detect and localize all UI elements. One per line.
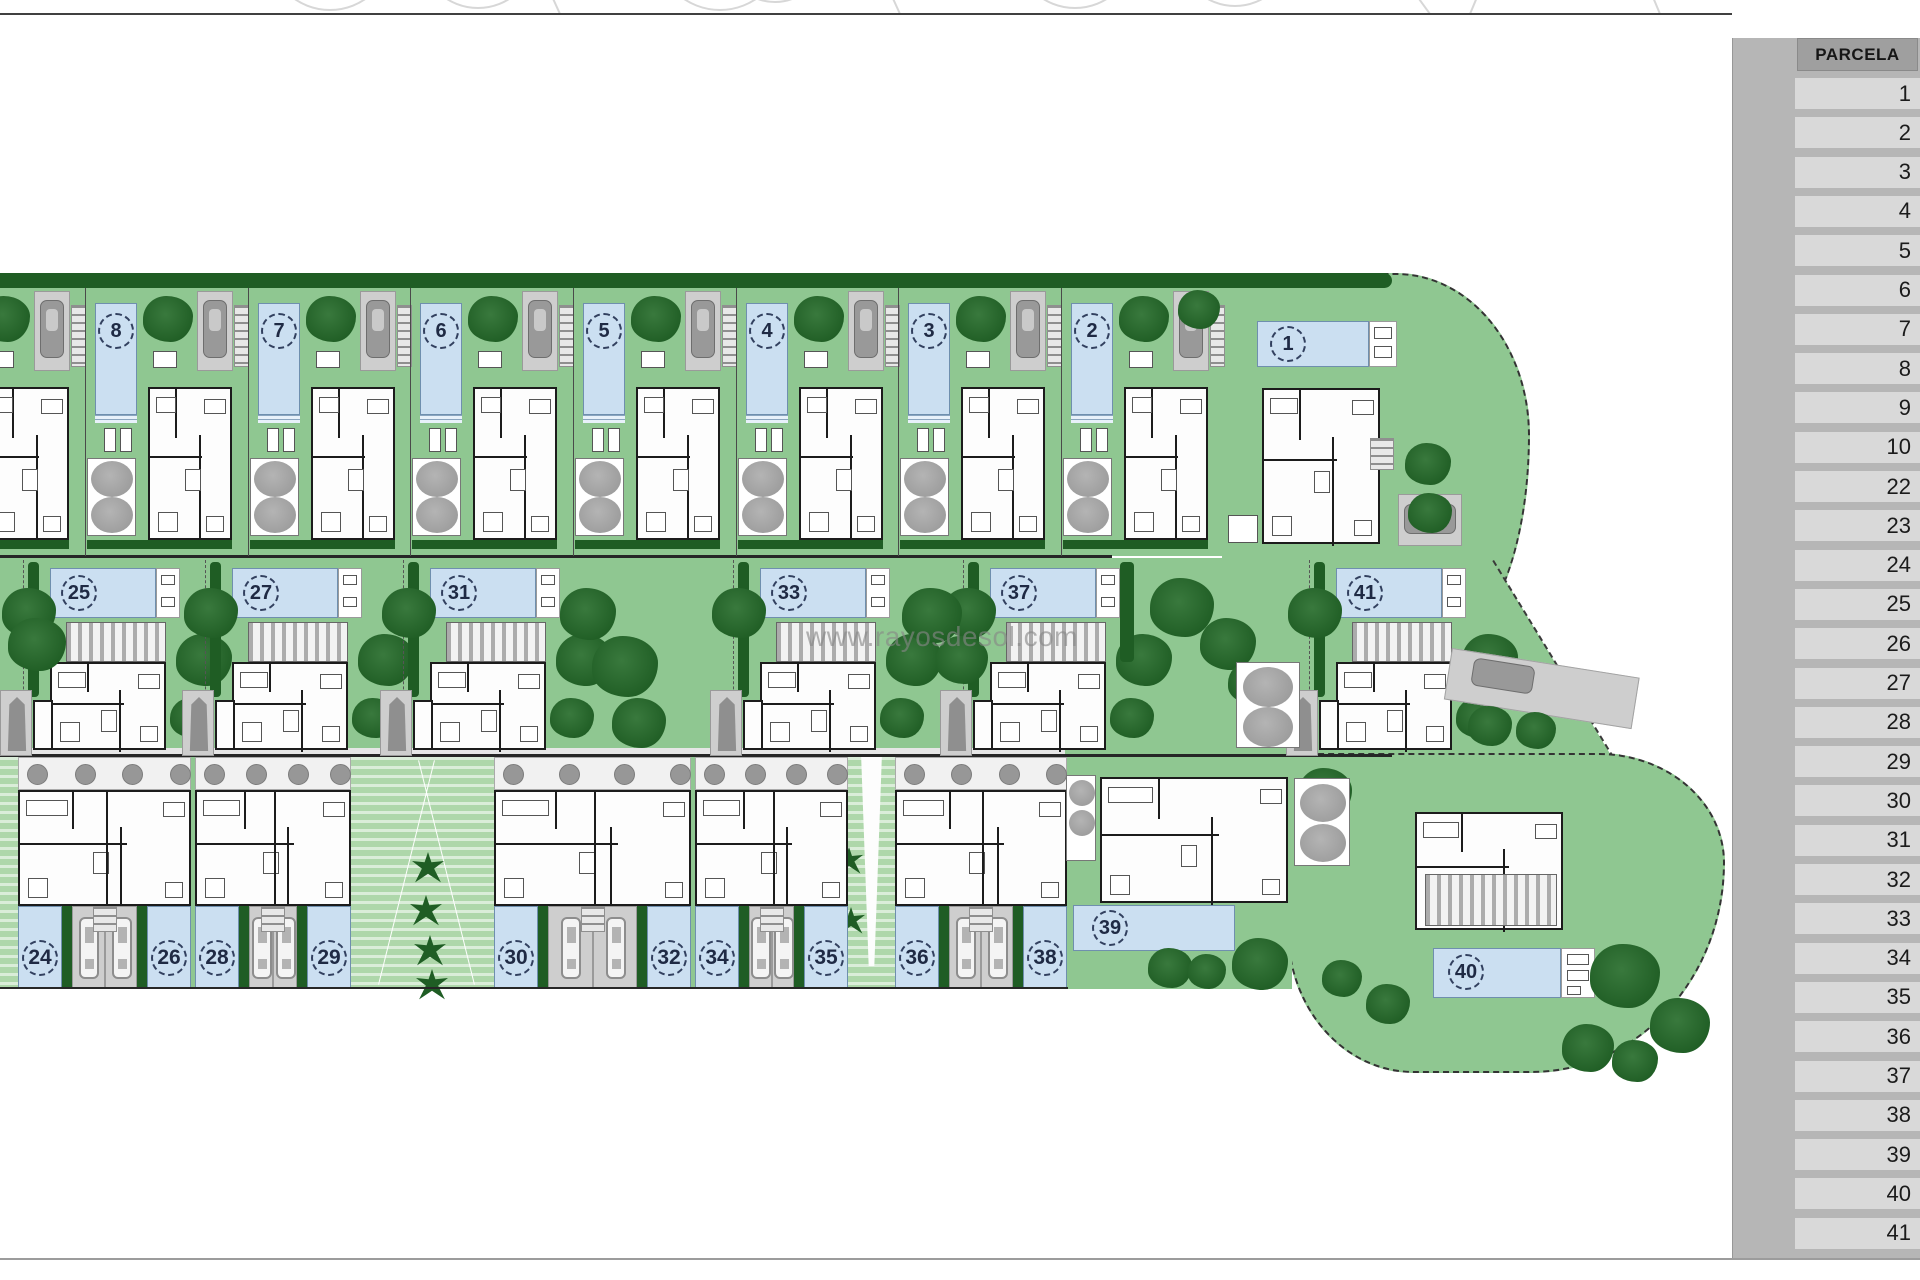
row1-house bbox=[473, 387, 557, 540]
front-terrace bbox=[494, 757, 691, 790]
rear-patio bbox=[412, 458, 461, 536]
sun-lounger bbox=[871, 575, 885, 585]
car-roof bbox=[209, 309, 221, 331]
plot-number-label: 33 bbox=[771, 575, 807, 611]
car-roof bbox=[534, 309, 546, 331]
car-icon bbox=[1016, 300, 1040, 358]
sun-lounger bbox=[1080, 428, 1092, 452]
party-wall bbox=[106, 792, 108, 908]
parcela-row: 36 bbox=[1795, 1021, 1920, 1052]
row2-house bbox=[430, 662, 546, 750]
car-roof bbox=[860, 309, 872, 331]
pool-steps bbox=[95, 415, 137, 423]
pool-deck bbox=[536, 568, 560, 618]
parcela-row: 25 bbox=[1795, 589, 1920, 620]
parcela-row: 10 bbox=[1795, 432, 1920, 463]
plot-number-label: 6 bbox=[423, 313, 459, 349]
garden-table bbox=[1228, 515, 1258, 543]
sun-lounger bbox=[608, 428, 620, 452]
parcela-row: 38 bbox=[1795, 1100, 1920, 1131]
plot-number-label: 3 bbox=[911, 313, 947, 349]
furniture bbox=[348, 469, 364, 491]
sun-lounger bbox=[343, 597, 357, 607]
gray-tree-icon bbox=[1300, 784, 1346, 822]
tree-icon bbox=[1468, 706, 1512, 746]
garden-table bbox=[641, 351, 665, 368]
sun-lounger bbox=[161, 597, 175, 607]
furniture bbox=[663, 802, 685, 817]
tree-icon bbox=[1178, 290, 1220, 329]
gray-tree-icon bbox=[91, 461, 133, 497]
furniture bbox=[1078, 674, 1100, 689]
rear-hedge bbox=[250, 540, 395, 549]
parasol-icon bbox=[559, 764, 580, 785]
parcela-row: 7 bbox=[1795, 314, 1920, 345]
house-wall bbox=[197, 843, 294, 845]
house-wall bbox=[87, 664, 89, 692]
walk-strip bbox=[848, 757, 895, 988]
plot-number-label: 32 bbox=[651, 940, 687, 976]
plot-boundary bbox=[85, 288, 86, 556]
parasol-icon bbox=[999, 764, 1020, 785]
parcela-row: 27 bbox=[1795, 668, 1920, 699]
furniture bbox=[1424, 674, 1446, 689]
furniture bbox=[761, 852, 777, 874]
furniture bbox=[502, 800, 549, 816]
garden-tree-icon bbox=[1119, 296, 1169, 342]
gray-tree-icon bbox=[1067, 461, 1109, 497]
furniture bbox=[1080, 726, 1098, 742]
pool-deck bbox=[866, 568, 890, 618]
sun-lounger bbox=[541, 597, 555, 607]
tree-icon bbox=[1288, 588, 1342, 638]
rear-patio bbox=[1063, 458, 1112, 536]
hedge-strip bbox=[1120, 562, 1134, 662]
entrance-steps bbox=[722, 305, 737, 367]
gray-tree-icon bbox=[1069, 810, 1095, 836]
row2-house-wing bbox=[973, 700, 993, 750]
car-icon bbox=[691, 300, 715, 358]
parasol-icon bbox=[827, 764, 848, 785]
furniture bbox=[1019, 516, 1037, 532]
house-wall bbox=[1264, 459, 1337, 461]
furniture bbox=[998, 672, 1026, 688]
plot-boundary bbox=[898, 288, 899, 556]
furniture bbox=[1039, 802, 1061, 817]
rear-patio bbox=[250, 458, 299, 536]
palm-tree-icon bbox=[411, 852, 445, 884]
house-wall bbox=[1211, 817, 1213, 905]
plot-number-label: 39 bbox=[1092, 910, 1128, 946]
car-seat bbox=[994, 927, 1003, 943]
gray-tree-icon bbox=[579, 461, 621, 497]
house-wall bbox=[1027, 664, 1029, 692]
sun-lounger bbox=[343, 575, 357, 585]
hedge-strip bbox=[739, 906, 749, 988]
row2-house-wing bbox=[743, 700, 763, 750]
furniture bbox=[58, 672, 86, 688]
garden-tree-icon bbox=[143, 296, 193, 342]
gray-tree-icon bbox=[1243, 707, 1293, 747]
rear-hedge bbox=[0, 540, 69, 549]
tree-icon bbox=[382, 588, 436, 638]
parasol-icon bbox=[614, 764, 635, 785]
furniture bbox=[822, 882, 840, 898]
car-icon bbox=[5, 697, 29, 751]
house-wall bbox=[120, 827, 122, 908]
furniture bbox=[1041, 710, 1057, 732]
parcela-row: 1 bbox=[1795, 78, 1920, 109]
sun-lounger bbox=[917, 428, 929, 452]
furniture bbox=[1161, 469, 1177, 491]
palm-tree-icon bbox=[415, 969, 449, 1001]
plot-number-label: 36 bbox=[899, 940, 935, 976]
furniture bbox=[158, 512, 178, 532]
furniture bbox=[971, 512, 991, 532]
furniture bbox=[438, 672, 466, 688]
pergola bbox=[1352, 622, 1452, 662]
house-wall bbox=[1373, 664, 1375, 692]
parasol-icon bbox=[786, 764, 807, 785]
furniture bbox=[529, 399, 551, 414]
sun-lounger bbox=[429, 428, 441, 452]
furniture bbox=[185, 469, 201, 491]
plot-number-label: 8 bbox=[98, 313, 134, 349]
row1-house bbox=[0, 387, 69, 540]
rear-hedge bbox=[1063, 540, 1208, 549]
row1-house bbox=[961, 387, 1045, 540]
plot-boundary bbox=[736, 288, 737, 556]
row2-house bbox=[232, 662, 348, 750]
plot-boundary bbox=[248, 288, 249, 556]
car-icon bbox=[203, 300, 227, 358]
furniture bbox=[665, 882, 683, 898]
parcela-row: 2 bbox=[1795, 117, 1920, 148]
tree-icon bbox=[1650, 998, 1710, 1053]
sun-lounger bbox=[161, 575, 175, 585]
furniture bbox=[848, 674, 870, 689]
shared-steps bbox=[760, 906, 784, 932]
house-wall bbox=[992, 703, 1064, 705]
furniture bbox=[905, 878, 925, 898]
row1-house bbox=[1124, 387, 1208, 540]
parasol-icon bbox=[745, 764, 766, 785]
house-wall bbox=[475, 456, 527, 458]
furniture bbox=[240, 672, 268, 688]
furniture bbox=[1260, 789, 1282, 804]
hedge-strip bbox=[1013, 906, 1023, 988]
furniture bbox=[768, 672, 796, 688]
furniture bbox=[531, 516, 549, 532]
house-wall bbox=[762, 703, 834, 705]
gray-tree-icon bbox=[1300, 824, 1346, 862]
parcela-row: 22 bbox=[1795, 471, 1920, 502]
furniture bbox=[483, 512, 503, 532]
plot-number-label: 40 bbox=[1448, 954, 1484, 990]
garden-table bbox=[153, 351, 177, 368]
rear-hedge bbox=[575, 540, 720, 549]
pergola bbox=[1425, 874, 1557, 926]
house-wall bbox=[20, 843, 127, 845]
car-seat bbox=[258, 959, 267, 969]
furniture bbox=[903, 800, 944, 816]
tree-icon bbox=[712, 588, 766, 638]
rear-hedge bbox=[738, 540, 883, 549]
parcela-row: 33 bbox=[1795, 903, 1920, 934]
car-icon bbox=[385, 697, 409, 751]
hedge-strip bbox=[137, 906, 147, 988]
furniture bbox=[322, 726, 340, 742]
sun-lounger bbox=[933, 428, 945, 452]
parasol-icon bbox=[904, 764, 925, 785]
parcela-row: 26 bbox=[1795, 628, 1920, 659]
furniture bbox=[1352, 400, 1374, 415]
parcela-row: 37 bbox=[1795, 1061, 1920, 1092]
hedge-strip bbox=[794, 906, 804, 988]
hedge-strip bbox=[62, 906, 72, 988]
tree-icon bbox=[1110, 698, 1154, 738]
car-seat bbox=[567, 927, 576, 943]
tree-icon bbox=[1405, 443, 1451, 485]
pergola bbox=[248, 622, 348, 662]
parasol-icon bbox=[75, 764, 96, 785]
pool-steps bbox=[908, 415, 950, 423]
furniture bbox=[850, 726, 868, 742]
house-wall bbox=[1338, 703, 1410, 705]
row1-row2-divider bbox=[0, 555, 1112, 558]
palm-tree-icon bbox=[409, 895, 443, 927]
house-wall bbox=[697, 843, 792, 845]
furniture bbox=[520, 726, 538, 742]
plot-number-label: 27 bbox=[243, 575, 279, 611]
parasol-icon bbox=[670, 764, 691, 785]
furniture bbox=[481, 710, 497, 732]
furniture bbox=[369, 516, 387, 532]
pergola bbox=[446, 622, 546, 662]
parcela-row: 41 bbox=[1795, 1218, 1920, 1249]
parcela-header: PARCELA bbox=[1797, 38, 1918, 71]
plot-number-label: 26 bbox=[151, 940, 187, 976]
shared-steps bbox=[261, 906, 285, 932]
house-wall bbox=[1126, 456, 1178, 458]
plot-number-label: 35 bbox=[808, 940, 844, 976]
rear-hedge bbox=[412, 540, 557, 549]
car-icon bbox=[606, 917, 626, 979]
house-wall bbox=[1417, 866, 1509, 868]
gray-tree-icon bbox=[416, 497, 458, 533]
parcela-row: 8 bbox=[1795, 353, 1920, 384]
parcela-row: 39 bbox=[1795, 1139, 1920, 1170]
tree-icon bbox=[550, 698, 594, 738]
rear-patio bbox=[900, 458, 949, 536]
sun-lounger bbox=[541, 575, 555, 585]
parcela-row: 3 bbox=[1795, 157, 1920, 188]
sun-lounger bbox=[104, 428, 116, 452]
house-wall bbox=[1461, 814, 1463, 852]
furniture bbox=[60, 722, 80, 742]
parcela-row: 28 bbox=[1795, 707, 1920, 738]
furniture bbox=[1272, 516, 1292, 536]
tree-icon bbox=[184, 588, 238, 638]
driveway bbox=[182, 690, 214, 756]
party-wall bbox=[594, 792, 596, 908]
tree-icon bbox=[1590, 944, 1660, 1008]
furniture bbox=[1182, 516, 1200, 532]
parcela-row: 4 bbox=[1795, 196, 1920, 227]
plot-number-label: 37 bbox=[1001, 575, 1037, 611]
gray-tree-icon bbox=[742, 461, 784, 497]
tree-icon bbox=[592, 636, 658, 697]
tree-icon bbox=[1612, 1040, 1658, 1082]
furniture bbox=[41, 399, 63, 414]
gray-tree-icon bbox=[91, 497, 133, 533]
house-wall bbox=[499, 690, 501, 752]
garden-table bbox=[804, 351, 828, 368]
car-seat bbox=[612, 927, 621, 943]
party-wall bbox=[773, 792, 775, 908]
tree-icon bbox=[1322, 960, 1362, 997]
plot1-pool-deck bbox=[1369, 321, 1397, 367]
entrance-steps bbox=[1047, 305, 1062, 367]
rear-patio bbox=[87, 458, 136, 536]
sun-lounger bbox=[267, 428, 279, 452]
furniture bbox=[504, 878, 524, 898]
row2-house bbox=[990, 662, 1106, 750]
furniture bbox=[644, 397, 664, 413]
furniture bbox=[0, 397, 13, 413]
duplex-house bbox=[895, 790, 1067, 906]
parasol-icon bbox=[951, 764, 972, 785]
tree-icon bbox=[1148, 948, 1192, 988]
furniture bbox=[323, 802, 345, 817]
furniture bbox=[138, 674, 160, 689]
rear-patio bbox=[575, 458, 624, 536]
furniture bbox=[811, 710, 827, 732]
gray-tree-icon bbox=[579, 497, 621, 533]
pool-deck bbox=[156, 568, 180, 618]
parasol-icon bbox=[288, 764, 309, 785]
tree-icon bbox=[176, 634, 232, 686]
car-roof bbox=[697, 309, 709, 331]
furniture bbox=[0, 512, 15, 532]
pergola bbox=[66, 622, 166, 662]
sun-lounger bbox=[283, 428, 295, 452]
parcela-rows: 1234567891022232425262728293031323334353… bbox=[1795, 78, 1920, 1258]
house-wall bbox=[610, 827, 612, 908]
garden-table bbox=[316, 351, 340, 368]
house-wall bbox=[801, 456, 853, 458]
parcela-row: 9 bbox=[1795, 392, 1920, 423]
parcela-row: 31 bbox=[1795, 825, 1920, 856]
furniture bbox=[26, 800, 68, 816]
furniture bbox=[1270, 398, 1298, 414]
furniture bbox=[857, 516, 875, 532]
plot39-house bbox=[1100, 777, 1288, 903]
car-seat bbox=[757, 959, 766, 969]
furniture bbox=[1134, 512, 1154, 532]
furniture bbox=[206, 516, 224, 532]
furniture bbox=[140, 726, 158, 742]
car-icon bbox=[561, 917, 581, 979]
parcela-row: 34 bbox=[1795, 943, 1920, 974]
furniture bbox=[481, 397, 501, 413]
pool-deck bbox=[1442, 568, 1466, 618]
plot-number-label: 31 bbox=[441, 575, 477, 611]
tree-icon bbox=[1366, 984, 1410, 1024]
car-seat bbox=[962, 959, 971, 969]
furniture bbox=[820, 802, 842, 817]
sun-lounger bbox=[592, 428, 604, 452]
furniture bbox=[510, 469, 526, 491]
tree-icon bbox=[1408, 493, 1452, 533]
plot-number-label: 4 bbox=[749, 313, 785, 349]
rear-hedge bbox=[87, 540, 232, 549]
house-wall bbox=[496, 843, 618, 845]
parasol-icon bbox=[246, 764, 267, 785]
furniture bbox=[1017, 399, 1039, 414]
furniture bbox=[673, 469, 689, 491]
parasol-icon bbox=[503, 764, 524, 785]
gray-tree-icon bbox=[416, 461, 458, 497]
house-wall bbox=[72, 792, 74, 829]
pool-steps bbox=[420, 415, 462, 423]
parcela-table: PARCELA 12345678910222324252627282930313… bbox=[1732, 38, 1920, 1258]
plot-number-label: 34 bbox=[699, 940, 735, 976]
furniture bbox=[646, 512, 666, 532]
furniture bbox=[203, 800, 240, 816]
car-icon bbox=[528, 300, 552, 358]
furniture bbox=[1387, 710, 1403, 732]
plot-number-label: 5 bbox=[586, 313, 622, 349]
entrance-steps bbox=[234, 305, 249, 367]
furniture bbox=[43, 516, 61, 532]
parcela-row: 40 bbox=[1795, 1178, 1920, 1209]
furniture bbox=[1354, 520, 1372, 536]
furniture bbox=[101, 710, 117, 732]
house-wall bbox=[743, 792, 745, 829]
house-wall bbox=[963, 456, 1015, 458]
furniture bbox=[692, 399, 714, 414]
sun-lounger bbox=[1101, 597, 1115, 607]
house-wall bbox=[797, 664, 799, 692]
house-wall bbox=[786, 827, 788, 908]
gray-tree-icon bbox=[254, 497, 296, 533]
car-roof bbox=[46, 309, 58, 331]
garden-table bbox=[966, 351, 990, 368]
house-wall bbox=[897, 843, 1004, 845]
party-wall bbox=[274, 792, 276, 908]
furniture bbox=[703, 800, 740, 816]
parasol-icon bbox=[704, 764, 725, 785]
house-wall bbox=[829, 690, 831, 752]
car-seat bbox=[118, 959, 127, 969]
driveway bbox=[0, 690, 32, 756]
car-icon bbox=[366, 300, 390, 358]
furniture bbox=[1346, 722, 1366, 742]
palm-tree-icon bbox=[413, 935, 447, 967]
garden-tree-icon bbox=[631, 296, 681, 342]
house-wall bbox=[269, 664, 271, 692]
furniture bbox=[320, 674, 342, 689]
parasol-icon bbox=[27, 764, 48, 785]
house-wall bbox=[150, 456, 202, 458]
hedge-strip bbox=[239, 906, 249, 988]
house-wall bbox=[638, 456, 690, 458]
car-icon bbox=[854, 300, 878, 358]
furniture bbox=[1110, 875, 1130, 895]
plot-boundary bbox=[410, 288, 411, 556]
furniture bbox=[1132, 397, 1152, 413]
